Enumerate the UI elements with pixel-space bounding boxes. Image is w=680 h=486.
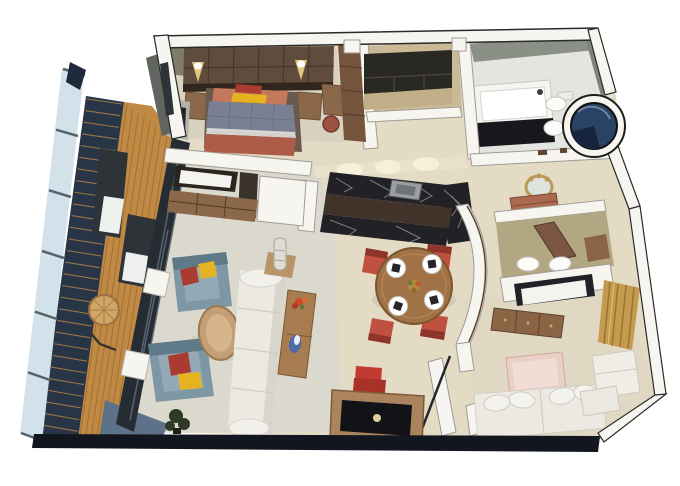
closet-cabinets: [364, 50, 452, 94]
suite-floor-plan-image: [0, 0, 680, 486]
plant-pot: [173, 428, 181, 434]
door-trim: [560, 148, 567, 153]
round-shower: [563, 95, 625, 157]
floor-plan-svg: [0, 0, 680, 486]
lounger-cushion: [122, 252, 148, 284]
place-setting: [389, 297, 408, 316]
wall-segment: [121, 350, 150, 380]
desk: [322, 84, 344, 116]
double-bed: [204, 84, 302, 156]
drawer-knob: [504, 319, 507, 322]
toilet-bowl: [546, 97, 566, 111]
desk-lamp: [373, 414, 381, 422]
sofa-arm: [229, 419, 269, 437]
wall-pillar: [452, 38, 466, 51]
drawer-knob: [527, 322, 530, 325]
nook-shelf: [584, 234, 610, 262]
bathtub: [474, 80, 555, 147]
drawer-knob: [550, 325, 553, 328]
table-lamp: [274, 238, 286, 270]
low-table-top: [512, 358, 559, 390]
sconce-bulb: [194, 63, 202, 70]
walk-in-closet-group: [364, 50, 462, 122]
wicker-spokes: [90, 296, 118, 324]
tub-faucet: [537, 89, 543, 95]
armchair: [172, 252, 232, 312]
place-setting: [425, 291, 444, 310]
door-trim: [538, 150, 547, 155]
bar-sink: [389, 180, 422, 200]
yellow-cushion: [198, 261, 217, 279]
bidet: [544, 121, 564, 136]
stool: [323, 116, 339, 132]
dining-chair: [368, 318, 394, 344]
wall-segment: [257, 176, 306, 226]
nightstand: [296, 92, 322, 120]
towel: [517, 257, 539, 271]
ottoman: [580, 386, 620, 416]
place-setting: [423, 255, 442, 274]
tub-front-panel: [477, 118, 555, 147]
tub-basin: [480, 87, 547, 121]
wall-bottom-dark: [32, 434, 600, 452]
yellow-cushion: [178, 372, 202, 390]
red-cushion: [168, 352, 191, 376]
wall-pillar: [344, 40, 360, 53]
place-setting: [387, 259, 406, 278]
wall-segment: [143, 268, 170, 297]
sconce-bulb: [297, 61, 305, 68]
